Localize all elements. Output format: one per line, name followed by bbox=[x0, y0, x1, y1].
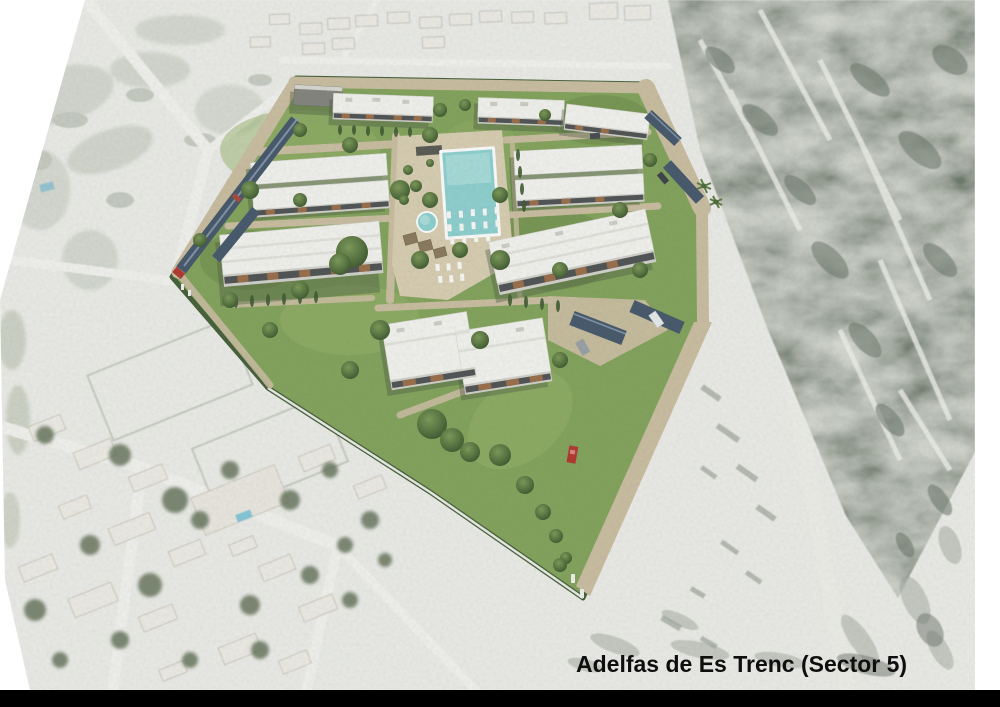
image-caption: Adelfas de Es Trenc (Sector 5) bbox=[576, 651, 907, 678]
document-page: Adelfas de Es Trenc (Sector 5) bbox=[0, 0, 1000, 707]
footer-bar bbox=[0, 690, 1000, 707]
aerial-photomontage bbox=[0, 0, 1000, 707]
photo-grain-overlay bbox=[0, 0, 1000, 690]
